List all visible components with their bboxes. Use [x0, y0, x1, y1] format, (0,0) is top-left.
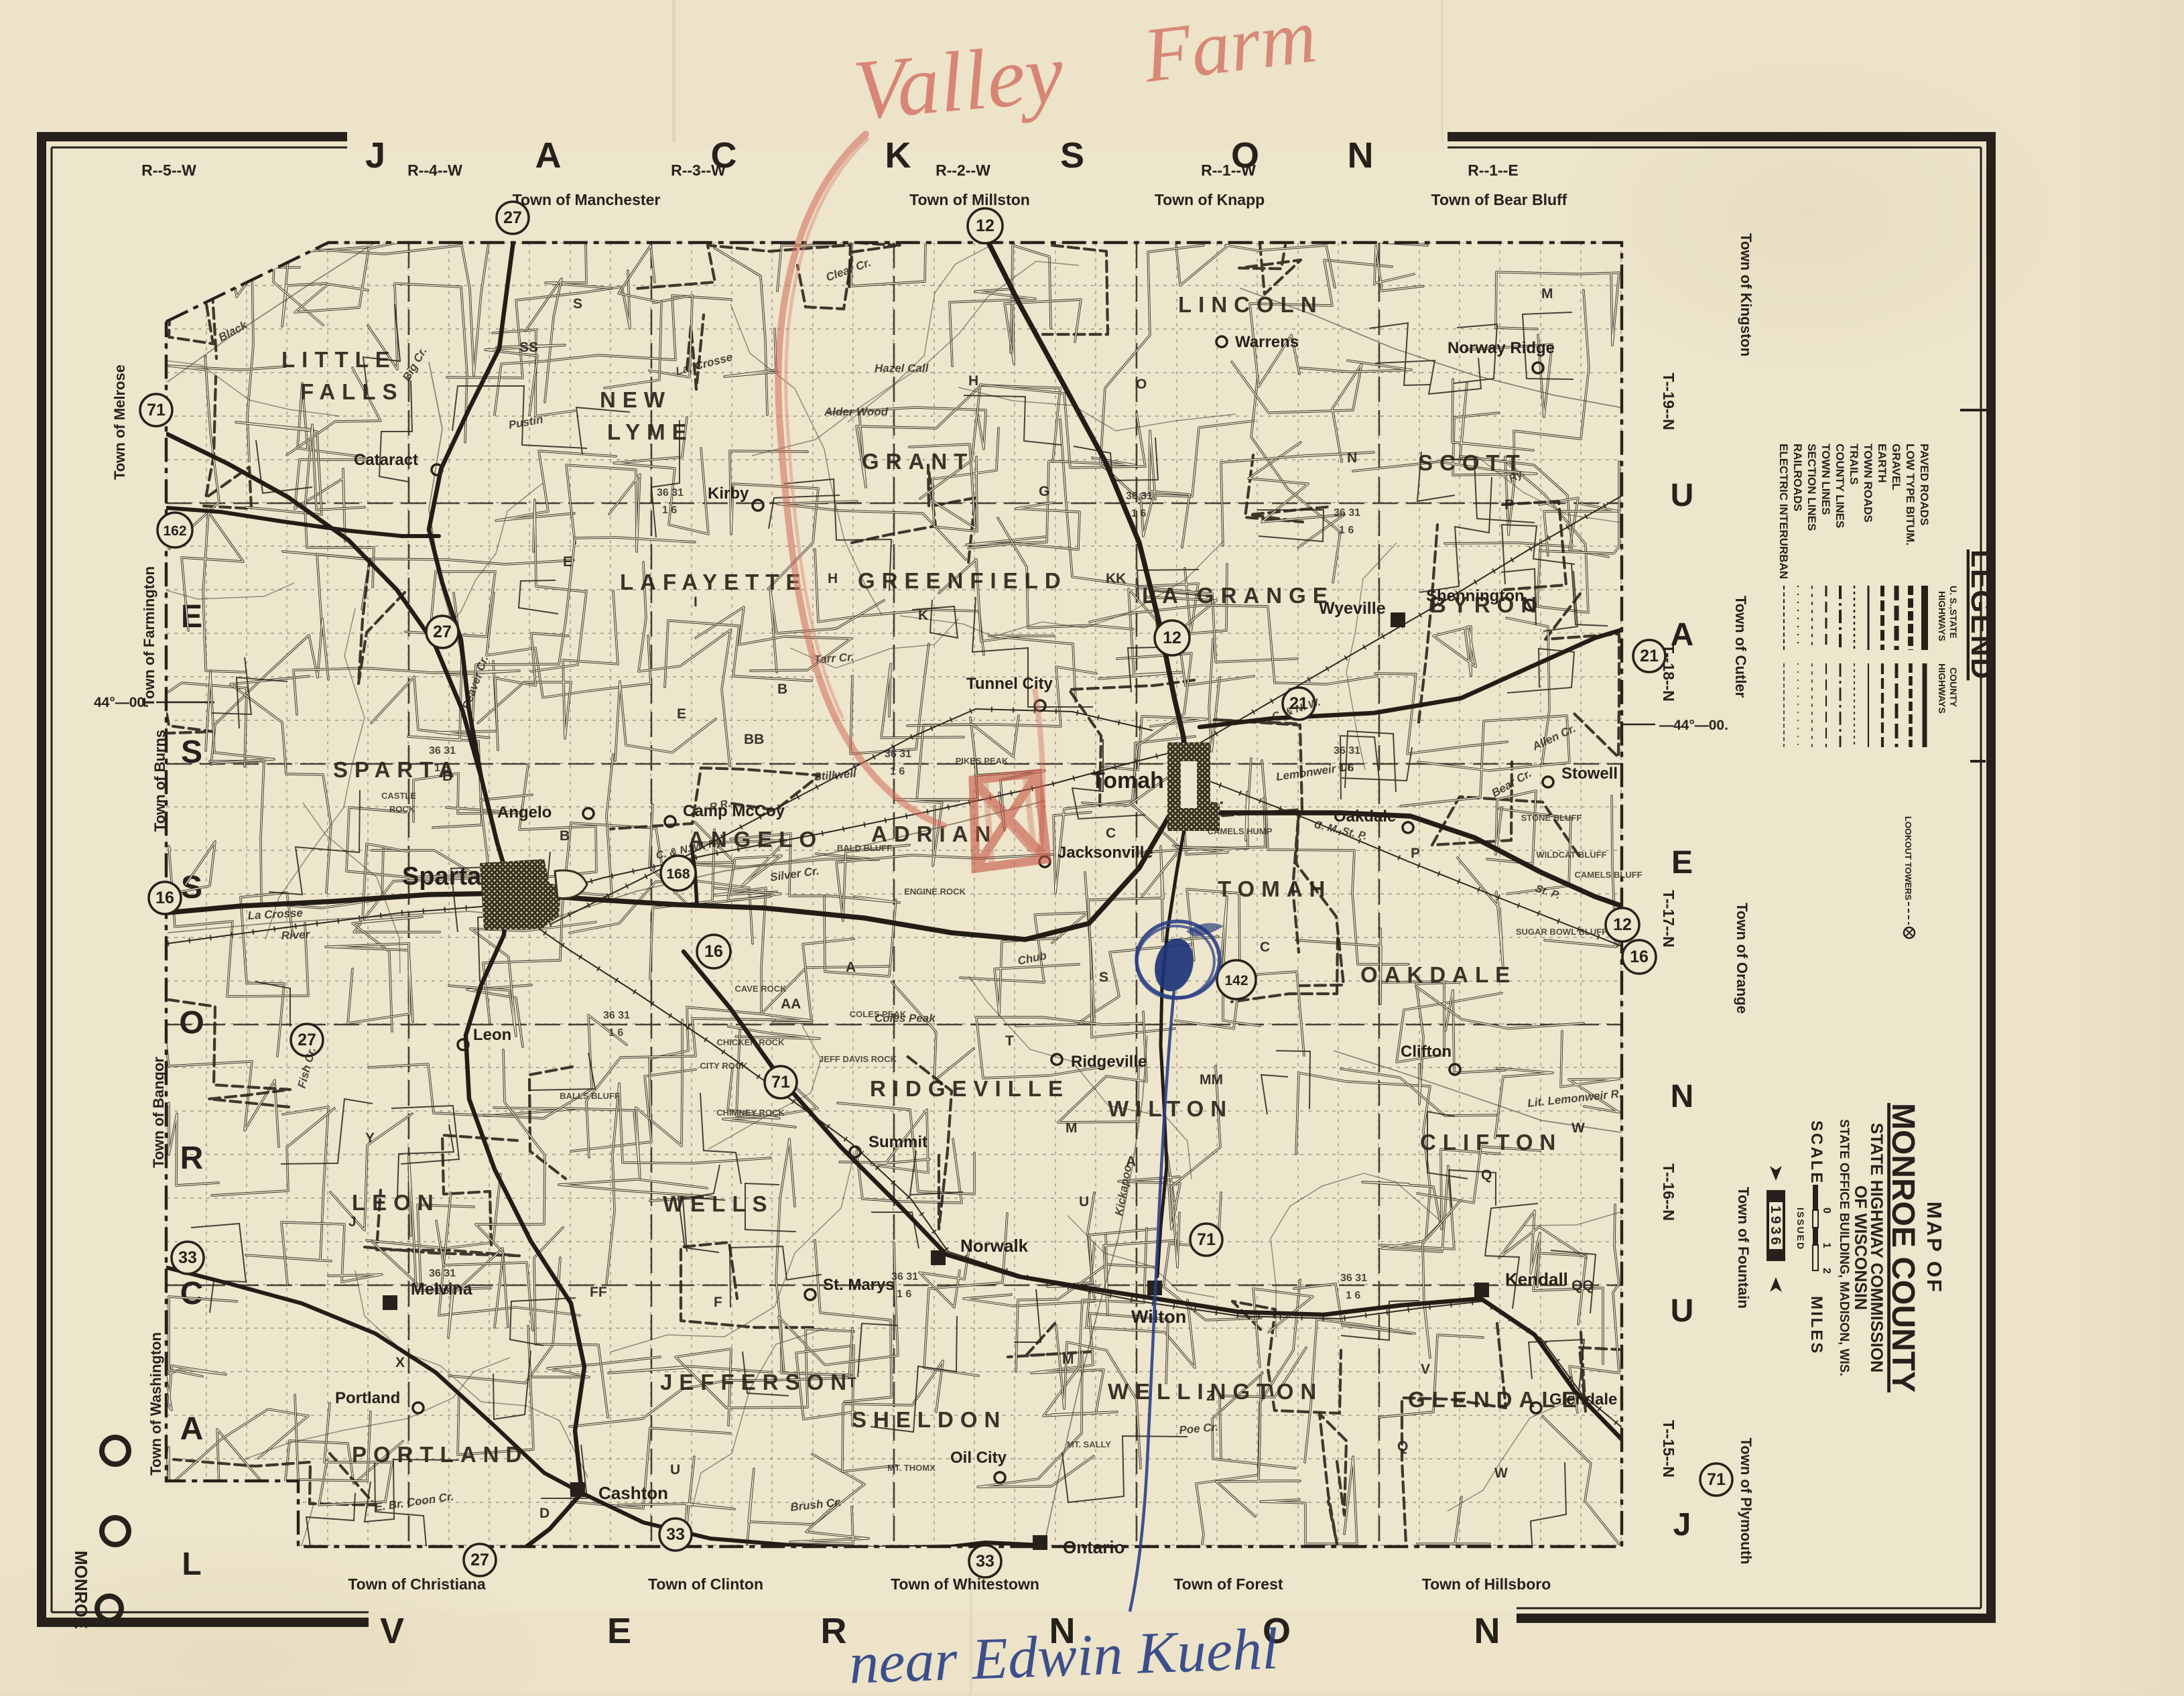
- svg-text:N: N: [1671, 1079, 1694, 1114]
- svg-text:1 6: 1 6: [434, 1285, 449, 1297]
- svg-text:NEW: NEW: [600, 387, 671, 412]
- svg-text:Town of Clinton: Town of Clinton: [648, 1575, 763, 1593]
- svg-text:TOWN LINES: TOWN LINES: [1819, 444, 1832, 515]
- svg-text:CAVE ROCK: CAVE ROCK: [734, 984, 787, 994]
- svg-text:Summit: Summit: [869, 1133, 927, 1151]
- svg-text:C: C: [180, 1276, 204, 1311]
- svg-text:G: G: [1039, 484, 1049, 499]
- svg-text:Town of Orange: Town of Orange: [1734, 903, 1750, 1014]
- svg-text:Cashton: Cashton: [598, 1483, 668, 1503]
- svg-text:Sparta: Sparta: [402, 862, 482, 891]
- svg-text:C: C: [1106, 826, 1116, 841]
- svg-text:N: N: [1347, 450, 1357, 466]
- svg-text:168: 168: [666, 866, 690, 882]
- svg-text:2: 2: [1821, 1268, 1832, 1274]
- svg-text:BYRON: BYRON: [1430, 592, 1543, 617]
- svg-text:J: J: [348, 1214, 357, 1230]
- svg-text:Town of Bear Bluff: Town of Bear Bluff: [1431, 191, 1567, 208]
- svg-text:36 31: 36 31: [657, 487, 684, 499]
- svg-text:STONE BLUFF: STONE BLUFF: [1521, 813, 1582, 823]
- svg-text:RAILROADS: RAILROADS: [1791, 444, 1804, 511]
- svg-text:Town of Kingston: Town of Kingston: [1738, 233, 1754, 356]
- svg-text:Kirby: Kirby: [708, 484, 749, 503]
- svg-text:CITY ROCK: CITY ROCK: [700, 1061, 748, 1071]
- svg-text:J: J: [365, 135, 385, 176]
- svg-text:0: 0: [1821, 1208, 1832, 1214]
- svg-text:Y: Y: [365, 1130, 375, 1146]
- svg-text:16: 16: [1630, 948, 1649, 966]
- svg-text:FALLS: FALLS: [300, 379, 404, 404]
- svg-text:RIDGEVILLE: RIDGEVILLE: [870, 1076, 1070, 1101]
- svg-text:1 6: 1 6: [1346, 1290, 1360, 1301]
- svg-text:E: E: [677, 706, 686, 722]
- svg-text:CAMELS HUMP: CAMELS HUMP: [1208, 826, 1273, 836]
- svg-text:ENGINE ROCK: ENGINE ROCK: [904, 887, 966, 897]
- svg-text:OF WISCONSIN: OF WISCONSIN: [1851, 1185, 1870, 1310]
- svg-text:Jacksonville: Jacksonville: [1057, 844, 1153, 862]
- svg-text:Portland: Portland: [335, 1389, 400, 1407]
- svg-text:Town of Melrose: Town of Melrose: [111, 365, 128, 480]
- svg-text:GRAVEL: GRAVEL: [1890, 444, 1903, 491]
- svg-text:U: U: [1671, 478, 1694, 513]
- svg-text:Camp McCoy: Camp McCoy: [683, 802, 785, 820]
- svg-text:R--4--W: R--4--W: [407, 161, 462, 179]
- svg-text:R: R: [821, 1611, 847, 1651]
- svg-text:FF: FF: [590, 1285, 607, 1300]
- svg-text:Angelo: Angelo: [497, 803, 552, 822]
- svg-text:Town of Farmington: Town of Farmington: [141, 566, 157, 707]
- svg-text:MILES: MILES: [1807, 1296, 1825, 1355]
- svg-text:Town of Plymouth: Town of Plymouth: [1738, 1437, 1754, 1564]
- svg-text:Town of Manchester: Town of Manchester: [513, 191, 661, 208]
- svg-text:36 31: 36 31: [1340, 1273, 1367, 1284]
- svg-text:W: W: [1571, 1120, 1585, 1136]
- svg-text:TRAILS: TRAILS: [1848, 444, 1860, 484]
- svg-text:CAMELS BLUFF: CAMELS BLUFF: [1574, 870, 1642, 880]
- svg-text:PAVED ROADS: PAVED ROADS: [1918, 444, 1931, 525]
- svg-text:MONROE COUNTY: MONROE COUNTY: [1885, 1103, 1921, 1392]
- svg-text:LINCOLN: LINCOLN: [1178, 292, 1324, 317]
- svg-text:36 31: 36 31: [885, 748, 911, 760]
- svg-text:LOW TYPE BITUM.: LOW TYPE BITUM.: [1904, 444, 1917, 545]
- svg-text:R--5--W: R--5--W: [141, 161, 196, 179]
- svg-text:MONROE: MONROE: [71, 1551, 91, 1629]
- svg-text:Town of Knapp: Town of Knapp: [1155, 191, 1265, 208]
- svg-text:36 31: 36 31: [603, 1010, 630, 1021]
- svg-text:TOMAH: TOMAH: [1218, 876, 1332, 901]
- svg-text:36 31: 36 31: [1334, 507, 1360, 519]
- svg-text:33: 33: [178, 1248, 197, 1267]
- svg-text:1 6: 1 6: [897, 1289, 911, 1300]
- svg-text:1 6: 1 6: [1339, 525, 1354, 536]
- svg-text:CHICKEN ROCK: CHICKEN ROCK: [716, 1037, 785, 1047]
- svg-text:GLENDALE: GLENDALE: [1408, 1387, 1584, 1412]
- svg-text:Cataract: Cataract: [354, 451, 418, 469]
- svg-text:16: 16: [704, 942, 723, 961]
- svg-text:U: U: [1671, 1293, 1694, 1329]
- svg-text:BALLS BLUFF: BALLS BLUFF: [560, 1091, 620, 1101]
- svg-text:Oakdale: Oakdale: [1334, 807, 1396, 826]
- svg-text:GRANT: GRANT: [862, 449, 974, 474]
- svg-text:MT. SALLY: MT. SALLY: [1067, 1439, 1111, 1449]
- svg-text:TOWN ROADS: TOWN ROADS: [1862, 444, 1874, 523]
- svg-text:U. S.,STATE: U. S.,STATE: [1948, 586, 1959, 639]
- svg-text:Town of Forest: Town of Forest: [1173, 1575, 1283, 1593]
- svg-text:—44°—00.: —44°—00.: [1659, 718, 1728, 733]
- svg-text:33: 33: [666, 1525, 685, 1544]
- svg-text:AA: AA: [781, 996, 801, 1012]
- svg-text:36 31: 36 31: [429, 745, 456, 757]
- svg-text:1 6: 1 6: [608, 1027, 623, 1039]
- svg-text:1 6: 1 6: [662, 505, 677, 516]
- svg-text:16: 16: [155, 889, 174, 907]
- svg-text:K: K: [918, 608, 928, 623]
- svg-text:W: W: [1494, 1465, 1508, 1481]
- svg-text:PIKES PEAK: PIKES PEAK: [956, 756, 1009, 766]
- svg-text:R--3--W: R--3--W: [671, 161, 726, 179]
- svg-text:COUNTY LINES: COUNTY LINES: [1834, 444, 1846, 528]
- svg-text:Ridgeville: Ridgeville: [1071, 1053, 1147, 1071]
- svg-text:162: 162: [163, 523, 186, 539]
- svg-text:EARTH: EARTH: [1876, 444, 1888, 483]
- svg-text:36 31: 36 31: [891, 1271, 918, 1283]
- svg-text:V: V: [380, 1611, 404, 1651]
- svg-text:Town of Millston: Town of Millston: [909, 191, 1030, 208]
- svg-text:BALD BLUFF: BALD BLUFF: [837, 843, 892, 853]
- svg-text:C: C: [1260, 939, 1270, 955]
- svg-text:L: L: [182, 1547, 201, 1582]
- svg-text:COUNTY: COUNTY: [1948, 667, 1959, 708]
- svg-text:Town of Fountain: Town of Fountain: [1735, 1187, 1752, 1309]
- svg-text:E: E: [181, 599, 202, 635]
- svg-text:E: E: [563, 554, 572, 570]
- svg-text:N: N: [1348, 135, 1374, 176]
- svg-text:71: 71: [1197, 1230, 1216, 1249]
- svg-text:O: O: [1136, 377, 1147, 392]
- svg-text:1 6: 1 6: [890, 766, 905, 777]
- svg-text:J: J: [1673, 1507, 1691, 1543]
- svg-text:Leon: Leon: [473, 1026, 511, 1044]
- svg-text:River: River: [281, 928, 311, 942]
- svg-text:T--16--N: T--16--N: [1660, 1163, 1677, 1221]
- svg-text:Wilton: Wilton: [1131, 1307, 1186, 1327]
- svg-text:SECTION LINES: SECTION LINES: [1805, 444, 1818, 531]
- svg-text:ELECTRIC INTERURBAN: ELECTRIC INTERURBAN: [1777, 444, 1790, 579]
- svg-text:Z: Z: [1206, 1388, 1215, 1404]
- svg-text:F: F: [714, 1295, 722, 1310]
- svg-text:SUGAR BOWL BLUFF: SUGAR BOWL BLUFF: [1516, 927, 1607, 937]
- svg-text:A: A: [535, 135, 562, 176]
- svg-text:WELLS: WELLS: [663, 1191, 773, 1216]
- svg-text:P: P: [1411, 846, 1420, 861]
- svg-text:COLES PEAK: COLES PEAK: [850, 1009, 907, 1019]
- svg-text:Town of Christiana: Town of Christiana: [348, 1575, 486, 1593]
- svg-text:CASTLE: CASTLE: [381, 791, 416, 801]
- svg-text:Town of Cutler: Town of Cutler: [1732, 596, 1749, 698]
- svg-text:H: H: [968, 373, 978, 389]
- svg-text:LITTLE: LITTLE: [281, 347, 397, 372]
- svg-text:Town of Hillsboro: Town of Hillsboro: [1422, 1575, 1551, 1593]
- svg-text:D: D: [539, 1506, 550, 1521]
- svg-text:GREENFIELD: GREENFIELD: [858, 568, 1068, 593]
- svg-text:Q: Q: [1481, 1167, 1492, 1183]
- svg-text:B: B: [777, 681, 787, 697]
- svg-text:BB: BB: [744, 732, 764, 747]
- svg-text:Tomah: Tomah: [1091, 768, 1164, 793]
- svg-text:12: 12: [976, 216, 994, 235]
- svg-text:36 31: 36 31: [429, 1268, 456, 1279]
- svg-text:M: M: [1066, 1120, 1078, 1136]
- svg-text:R--1--E: R--1--E: [1468, 161, 1518, 179]
- svg-text:K: K: [885, 135, 911, 176]
- svg-text:1936: 1936: [1768, 1205, 1783, 1248]
- svg-text:27: 27: [433, 623, 452, 641]
- svg-text:U: U: [670, 1462, 680, 1478]
- svg-text:KK: KK: [1106, 571, 1126, 586]
- svg-text:Clifton: Clifton: [1401, 1043, 1452, 1061]
- svg-text:B: B: [442, 769, 452, 784]
- svg-text:X: X: [395, 1355, 405, 1370]
- svg-text:36 31: 36 31: [1126, 491, 1153, 502]
- svg-text:WELLINGTON: WELLINGTON: [1108, 1379, 1323, 1404]
- svg-text:PORTLAND: PORTLAND: [352, 1442, 528, 1467]
- svg-text:QQ: QQ: [1571, 1278, 1594, 1293]
- svg-text:JEFFERSON: JEFFERSON: [660, 1370, 853, 1394]
- svg-text:Hazel Call: Hazel Call: [875, 362, 929, 375]
- svg-text:T--19--N: T--19--N: [1660, 373, 1677, 430]
- svg-text:R--1--W: R--1--W: [1201, 161, 1256, 179]
- svg-text:27: 27: [470, 1551, 489, 1569]
- svg-text:M: M: [1062, 1352, 1074, 1367]
- svg-text:E: E: [1671, 845, 1693, 880]
- svg-text:E: E: [607, 1611, 631, 1651]
- svg-text:12: 12: [1613, 915, 1632, 934]
- svg-text:SS: SS: [519, 340, 538, 355]
- svg-text:ISSUED: ISSUED: [1795, 1208, 1806, 1250]
- svg-text:P: P: [1504, 497, 1514, 513]
- svg-text:A: A: [846, 960, 856, 975]
- svg-text:71: 71: [1707, 1470, 1726, 1489]
- svg-text:N: N: [1474, 1611, 1500, 1651]
- svg-text:I: I: [694, 594, 698, 610]
- svg-text:SCOTT: SCOTT: [1418, 450, 1527, 475]
- svg-text:T: T: [1005, 1033, 1014, 1049]
- svg-text:Alder Wood: Alder Wood: [824, 405, 889, 418]
- svg-text:ROCK: ROCK: [389, 804, 415, 814]
- svg-text:LEON: LEON: [352, 1190, 440, 1215]
- svg-text:Town of Washington: Town of Washington: [147, 1332, 164, 1476]
- svg-text:36 31: 36 31: [1334, 745, 1360, 757]
- svg-text:LAFAYETTE: LAFAYETTE: [620, 570, 807, 594]
- svg-text:A: A: [180, 1411, 204, 1447]
- svg-text:CLIFTON: CLIFTON: [1420, 1130, 1562, 1155]
- svg-text:142: 142: [1224, 973, 1248, 988]
- svg-text:LYME: LYME: [607, 419, 694, 444]
- svg-text:V: V: [1421, 1362, 1430, 1377]
- svg-text:HIGHWAYS: HIGHWAYS: [1937, 663, 1947, 714]
- svg-text:Tunnel City: Tunnel City: [966, 675, 1053, 693]
- svg-text:H: H: [828, 571, 838, 586]
- svg-text:Q: Q: [1397, 1439, 1408, 1454]
- svg-text:Norway Ridge: Norway Ridge: [1448, 339, 1555, 357]
- svg-text:33: 33: [976, 1552, 994, 1571]
- svg-text:T--17--N: T--17--N: [1660, 890, 1677, 948]
- svg-text:71: 71: [147, 401, 166, 419]
- svg-text:21: 21: [1640, 647, 1659, 665]
- svg-text:U: U: [1079, 1194, 1089, 1210]
- svg-text:S: S: [1099, 970, 1108, 985]
- svg-text:JEFF DAVIS ROCK: JEFF DAVIS ROCK: [819, 1054, 897, 1064]
- svg-text:1 6: 1 6: [1131, 508, 1146, 519]
- svg-text:Town of Whitestown: Town of Whitestown: [891, 1575, 1039, 1593]
- svg-text:CHIMNEY ROCK: CHIMNEY ROCK: [716, 1108, 785, 1118]
- svg-text:44°—00.: 44°—00.: [94, 695, 149, 710]
- svg-text:OAKDALE: OAKDALE: [1360, 962, 1517, 987]
- svg-text:LOOKOUT TOWERS: LOOKOUT TOWERS: [1903, 816, 1913, 901]
- svg-text:T--15--N: T--15--N: [1660, 1420, 1677, 1478]
- svg-text:1: 1: [1821, 1242, 1832, 1248]
- svg-text:Kendall: Kendall: [1505, 1269, 1568, 1289]
- svg-text:R: R: [180, 1140, 204, 1176]
- svg-text:St. Marys: St. Marys: [823, 1276, 895, 1294]
- svg-text:MT. THOMX: MT. THOMX: [887, 1463, 936, 1473]
- svg-text:S: S: [573, 296, 582, 312]
- svg-text:S: S: [1060, 135, 1084, 176]
- svg-text:Oil City: Oil City: [950, 1449, 1007, 1467]
- svg-text:MAP OF: MAP OF: [1923, 1201, 1946, 1294]
- svg-text:LA GRANGE: LA GRANGE: [1142, 583, 1334, 608]
- svg-text:M: M: [1541, 286, 1553, 302]
- svg-text:12: 12: [1163, 629, 1181, 647]
- svg-text:SHELDON: SHELDON: [852, 1407, 1007, 1432]
- svg-text:27: 27: [503, 208, 522, 227]
- svg-text:HIGHWAYS: HIGHWAYS: [1937, 591, 1947, 641]
- svg-text:SCALE: SCALE: [1807, 1120, 1825, 1185]
- svg-text:Warrens: Warrens: [1235, 333, 1299, 351]
- svg-text:Stowell: Stowell: [1561, 765, 1618, 783]
- svg-text:Ontario: Ontario: [1063, 1537, 1125, 1557]
- svg-text:Valley: Valley: [850, 25, 1067, 138]
- svg-text:Town of Bangor: Town of Bangor: [150, 1057, 167, 1168]
- svg-text:STATE OFFICE BUILDING, MADISON: STATE OFFICE BUILDING, MADISON, WIS.: [1837, 1119, 1851, 1376]
- svg-text:MM: MM: [1200, 1072, 1223, 1088]
- svg-text:WILDCAT BLUFF: WILDCAT BLUFF: [1536, 850, 1606, 860]
- svg-text:71: 71: [771, 1073, 790, 1092]
- svg-text:B: B: [560, 828, 570, 844]
- svg-text:Norwalk: Norwalk: [960, 1236, 1029, 1256]
- svg-text:LEGEND: LEGEND: [1965, 549, 1998, 680]
- svg-text:T: T: [848, 1375, 856, 1390]
- svg-text:WILTON: WILTON: [1108, 1096, 1233, 1121]
- svg-text:O: O: [179, 1005, 204, 1041]
- svg-text:R--2--W: R--2--W: [936, 161, 990, 179]
